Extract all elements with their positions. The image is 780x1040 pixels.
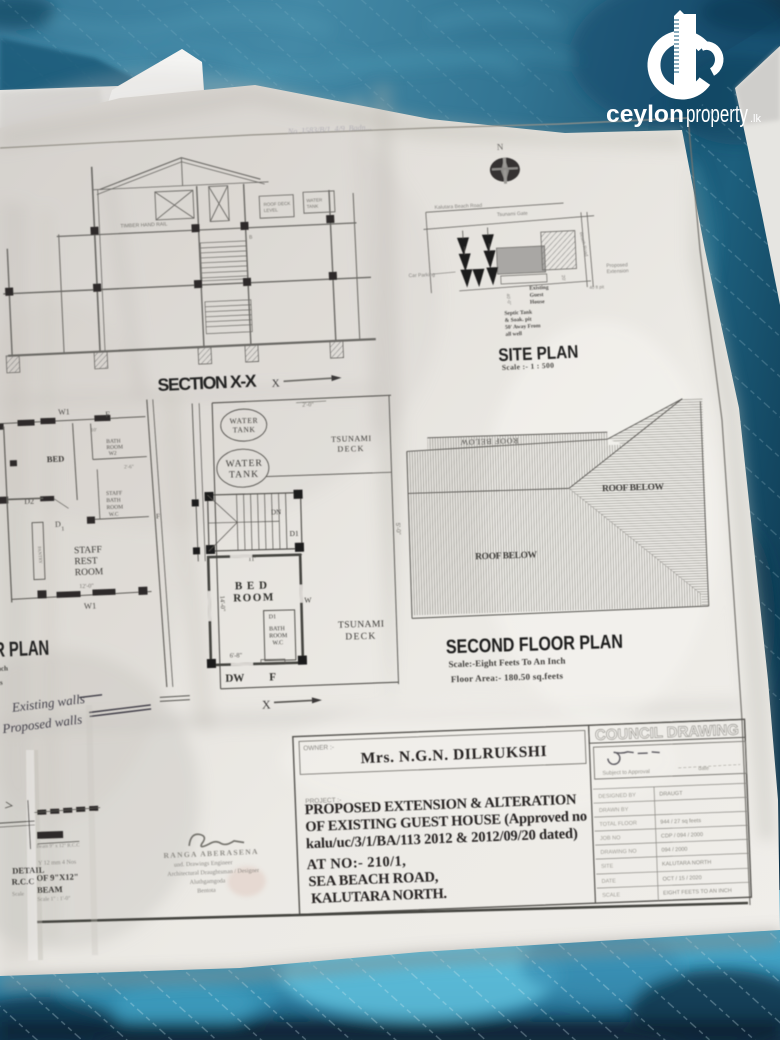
svg-text:6'-8": 6'-8" — [230, 652, 243, 659]
svg-text:Scale: Scale — [12, 891, 25, 897]
svg-text:ROOF BELOW: ROOF BELOW — [460, 436, 519, 447]
svg-text:X: X — [271, 378, 280, 390]
svg-text:BATH: BATH — [269, 626, 285, 632]
svg-text:ROOF BELOW: ROOF BELOW — [475, 550, 538, 562]
svg-text:X: X — [262, 698, 271, 712]
svg-text:STAFF: STAFF — [74, 545, 102, 556]
svg-text:.lk: .lk — [750, 113, 762, 125]
svg-text:ROOM: ROOM — [233, 591, 274, 604]
svg-text:DW: DW — [225, 672, 244, 684]
svg-text:Existing: Existing — [529, 285, 549, 292]
svg-text:JOB NO: JOB NO — [600, 835, 621, 842]
svg-text:DRAUGT: DRAUGT — [659, 791, 683, 798]
svg-text:TANK: TANK — [229, 470, 258, 481]
svg-text:TANK: TANK — [307, 204, 319, 210]
svg-text:property: property — [686, 101, 748, 128]
svg-text:R.C.C: R.C.C — [12, 876, 35, 887]
svg-text:F: F — [156, 512, 160, 520]
svg-text:Extension: Extension — [607, 268, 629, 275]
svg-text:W1: W1 — [84, 600, 97, 610]
svg-text:Car Parking: Car Parking — [409, 272, 436, 279]
svg-text:& Soak. pit: & Soak. pit — [505, 317, 532, 324]
svg-text:ROOM: ROOM — [75, 567, 104, 578]
svg-text:Bentota: Bentota — [197, 888, 216, 895]
svg-text:nch: nch — [0, 664, 8, 672]
svg-text:ROOM: ROOM — [269, 633, 288, 639]
svg-text:Scale 1" : 1'-0": Scale 1" : 1'-0" — [37, 896, 70, 903]
svg-text:W: W — [304, 595, 312, 604]
svg-text:Guest: Guest — [530, 292, 544, 299]
svg-text:SCALE: SCALE — [602, 892, 621, 899]
svg-text:DN: DN — [271, 508, 281, 516]
svg-text:W2: W2 — [109, 451, 117, 457]
svg-text:LEVEL: LEVEL — [264, 207, 279, 213]
svg-text:2'-6": 2'-6" — [124, 465, 134, 470]
svg-text:DECK: DECK — [337, 444, 363, 454]
svg-text:20': 20' — [561, 275, 567, 282]
svg-text:10': 10' — [91, 428, 97, 433]
svg-text:BATH: BATH — [106, 498, 121, 504]
svg-text:F: F — [269, 671, 276, 683]
svg-text:40 ft pit: 40 ft pit — [589, 284, 605, 290]
svg-text:SITE: SITE — [601, 863, 614, 869]
svg-text:TANK: TANK — [233, 425, 256, 435]
svg-text:BED: BED — [47, 453, 65, 464]
svg-text:OWNER :-: OWNER :- — [303, 744, 334, 752]
svg-text:OF 9"X12": OF 9"X12" — [36, 871, 78, 882]
svg-text:BEAM: BEAM — [37, 884, 63, 895]
svg-text:WATER: WATER — [226, 459, 263, 470]
svg-text:DATE: DATE — [602, 878, 617, 885]
svg-text:TSUNAMI: TSUNAMI — [331, 434, 372, 444]
svg-text:1: 1 — [61, 527, 64, 533]
svg-text:DRAWN BY: DRAWN BY — [599, 807, 629, 814]
svg-text:REST: REST — [74, 556, 98, 567]
svg-text:ceylon: ceylon — [606, 101, 684, 128]
svg-text:D1: D1 — [289, 529, 299, 538]
svg-text:W1: W1 — [58, 407, 70, 416]
svg-text:ROOM: ROOM — [106, 504, 123, 511]
svg-text:W.C: W.C — [272, 640, 283, 646]
svg-text:WATER: WATER — [306, 197, 323, 203]
svg-text:2'-0": 2'-0" — [302, 402, 314, 408]
svg-text:094 / 2000: 094 / 2000 — [661, 847, 687, 854]
svg-text:5'-0": 5'-0" — [394, 523, 401, 535]
svg-text:DECK: DECK — [345, 632, 375, 643]
svg-text:12'-0": 12'-0" — [79, 584, 94, 591]
svg-text:N: N — [497, 142, 504, 152]
svg-text:14'-0": 14'-0" — [218, 595, 226, 611]
svg-text:all well: all well — [505, 331, 522, 338]
svg-text:W.C: W.C — [109, 512, 119, 518]
svg-text:BED: BED — [235, 580, 267, 593]
svg-text:TSUNAMI: TSUNAMI — [338, 620, 384, 631]
svg-text:R PLAN: R PLAN — [0, 637, 50, 662]
svg-text:D1: D1 — [269, 614, 276, 620]
svg-text:House: House — [530, 299, 545, 306]
svg-text:ROOF BELOW: ROOF BELOW — [602, 482, 665, 494]
svg-text:STAFF: STAFF — [106, 490, 122, 497]
